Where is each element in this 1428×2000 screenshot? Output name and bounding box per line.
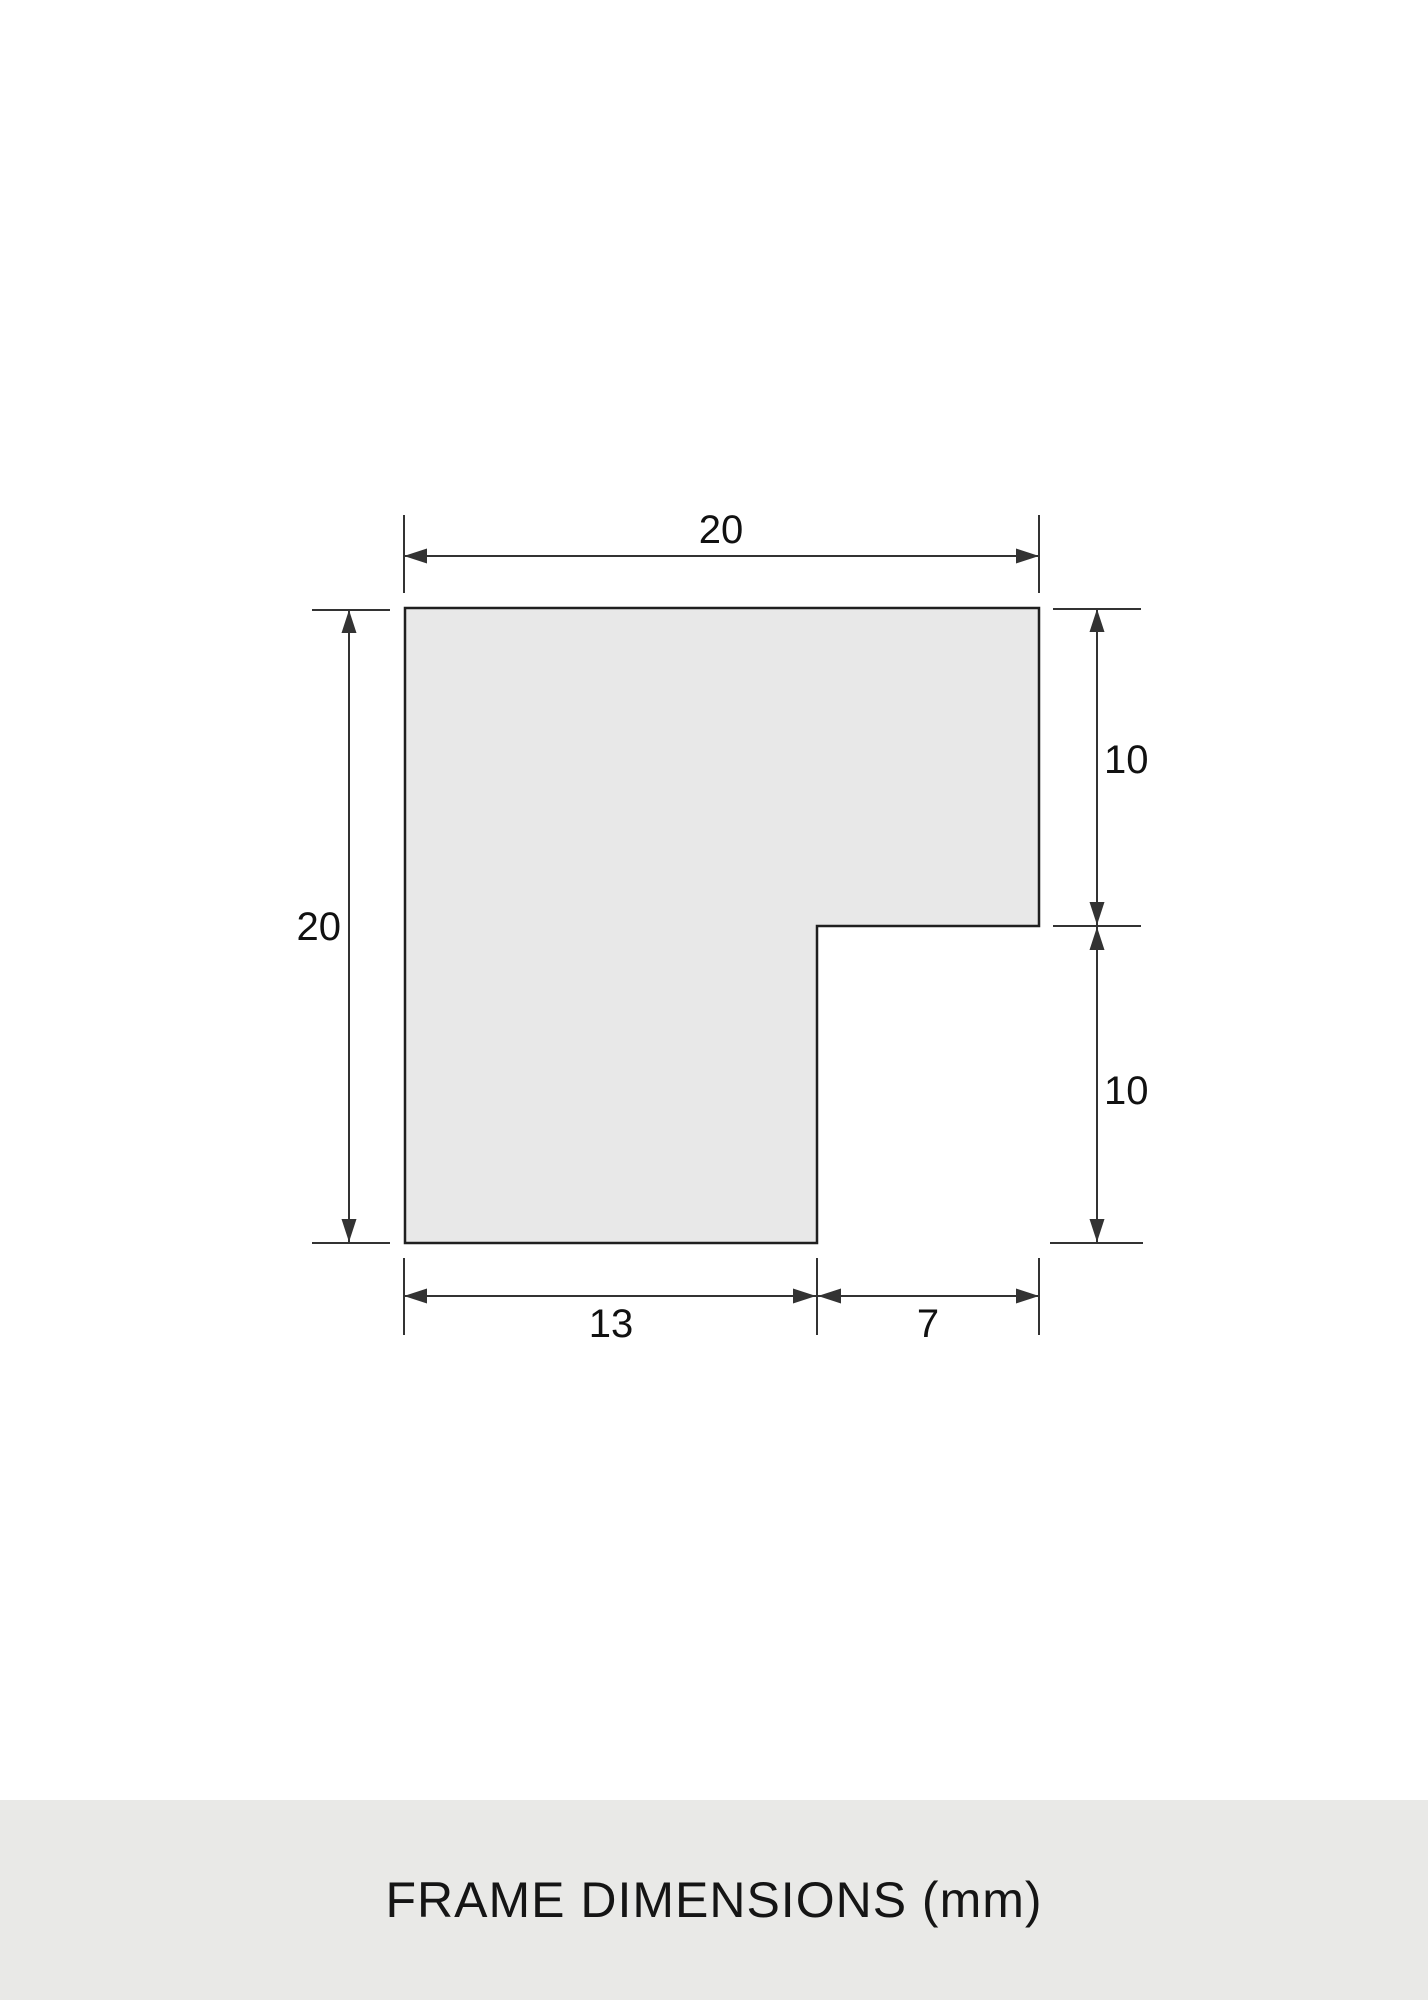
arrowhead-right-icon xyxy=(1016,549,1039,564)
caption-band: FRAME DIMENSIONS (mm) xyxy=(0,1800,1428,2000)
arrowhead-right-icon xyxy=(1016,1289,1039,1304)
dimension-label-bottom-left: 13 xyxy=(589,1302,634,1346)
page: 20 20 10 10 xyxy=(0,0,1428,2000)
frame-dimension-drawing: 20 20 10 10 xyxy=(0,0,1428,2000)
arrowhead-up-icon xyxy=(1090,927,1105,950)
dimension-label-bottom-right: 7 xyxy=(917,1302,939,1346)
arrowhead-down-icon xyxy=(342,1219,357,1242)
arrowhead-left-icon xyxy=(404,549,427,564)
caption-text: FRAME DIMENSIONS (mm) xyxy=(385,1871,1042,1929)
frame-profile-shape xyxy=(405,608,1039,1243)
dimension-label-right-lower: 10 xyxy=(1104,1069,1149,1113)
arrowhead-left-icon xyxy=(404,1289,427,1304)
dimension-label-left: 20 xyxy=(297,905,342,949)
dimension-label-right-upper: 10 xyxy=(1104,738,1149,782)
arrowhead-down-icon xyxy=(1090,902,1105,925)
arrowhead-down-icon xyxy=(1090,1219,1105,1242)
arrowhead-up-icon xyxy=(342,610,357,633)
dimension-label-top: 20 xyxy=(699,508,744,552)
arrowhead-right-icon xyxy=(793,1289,816,1304)
arrowhead-left-icon xyxy=(818,1289,841,1304)
arrowhead-up-icon xyxy=(1090,609,1105,632)
